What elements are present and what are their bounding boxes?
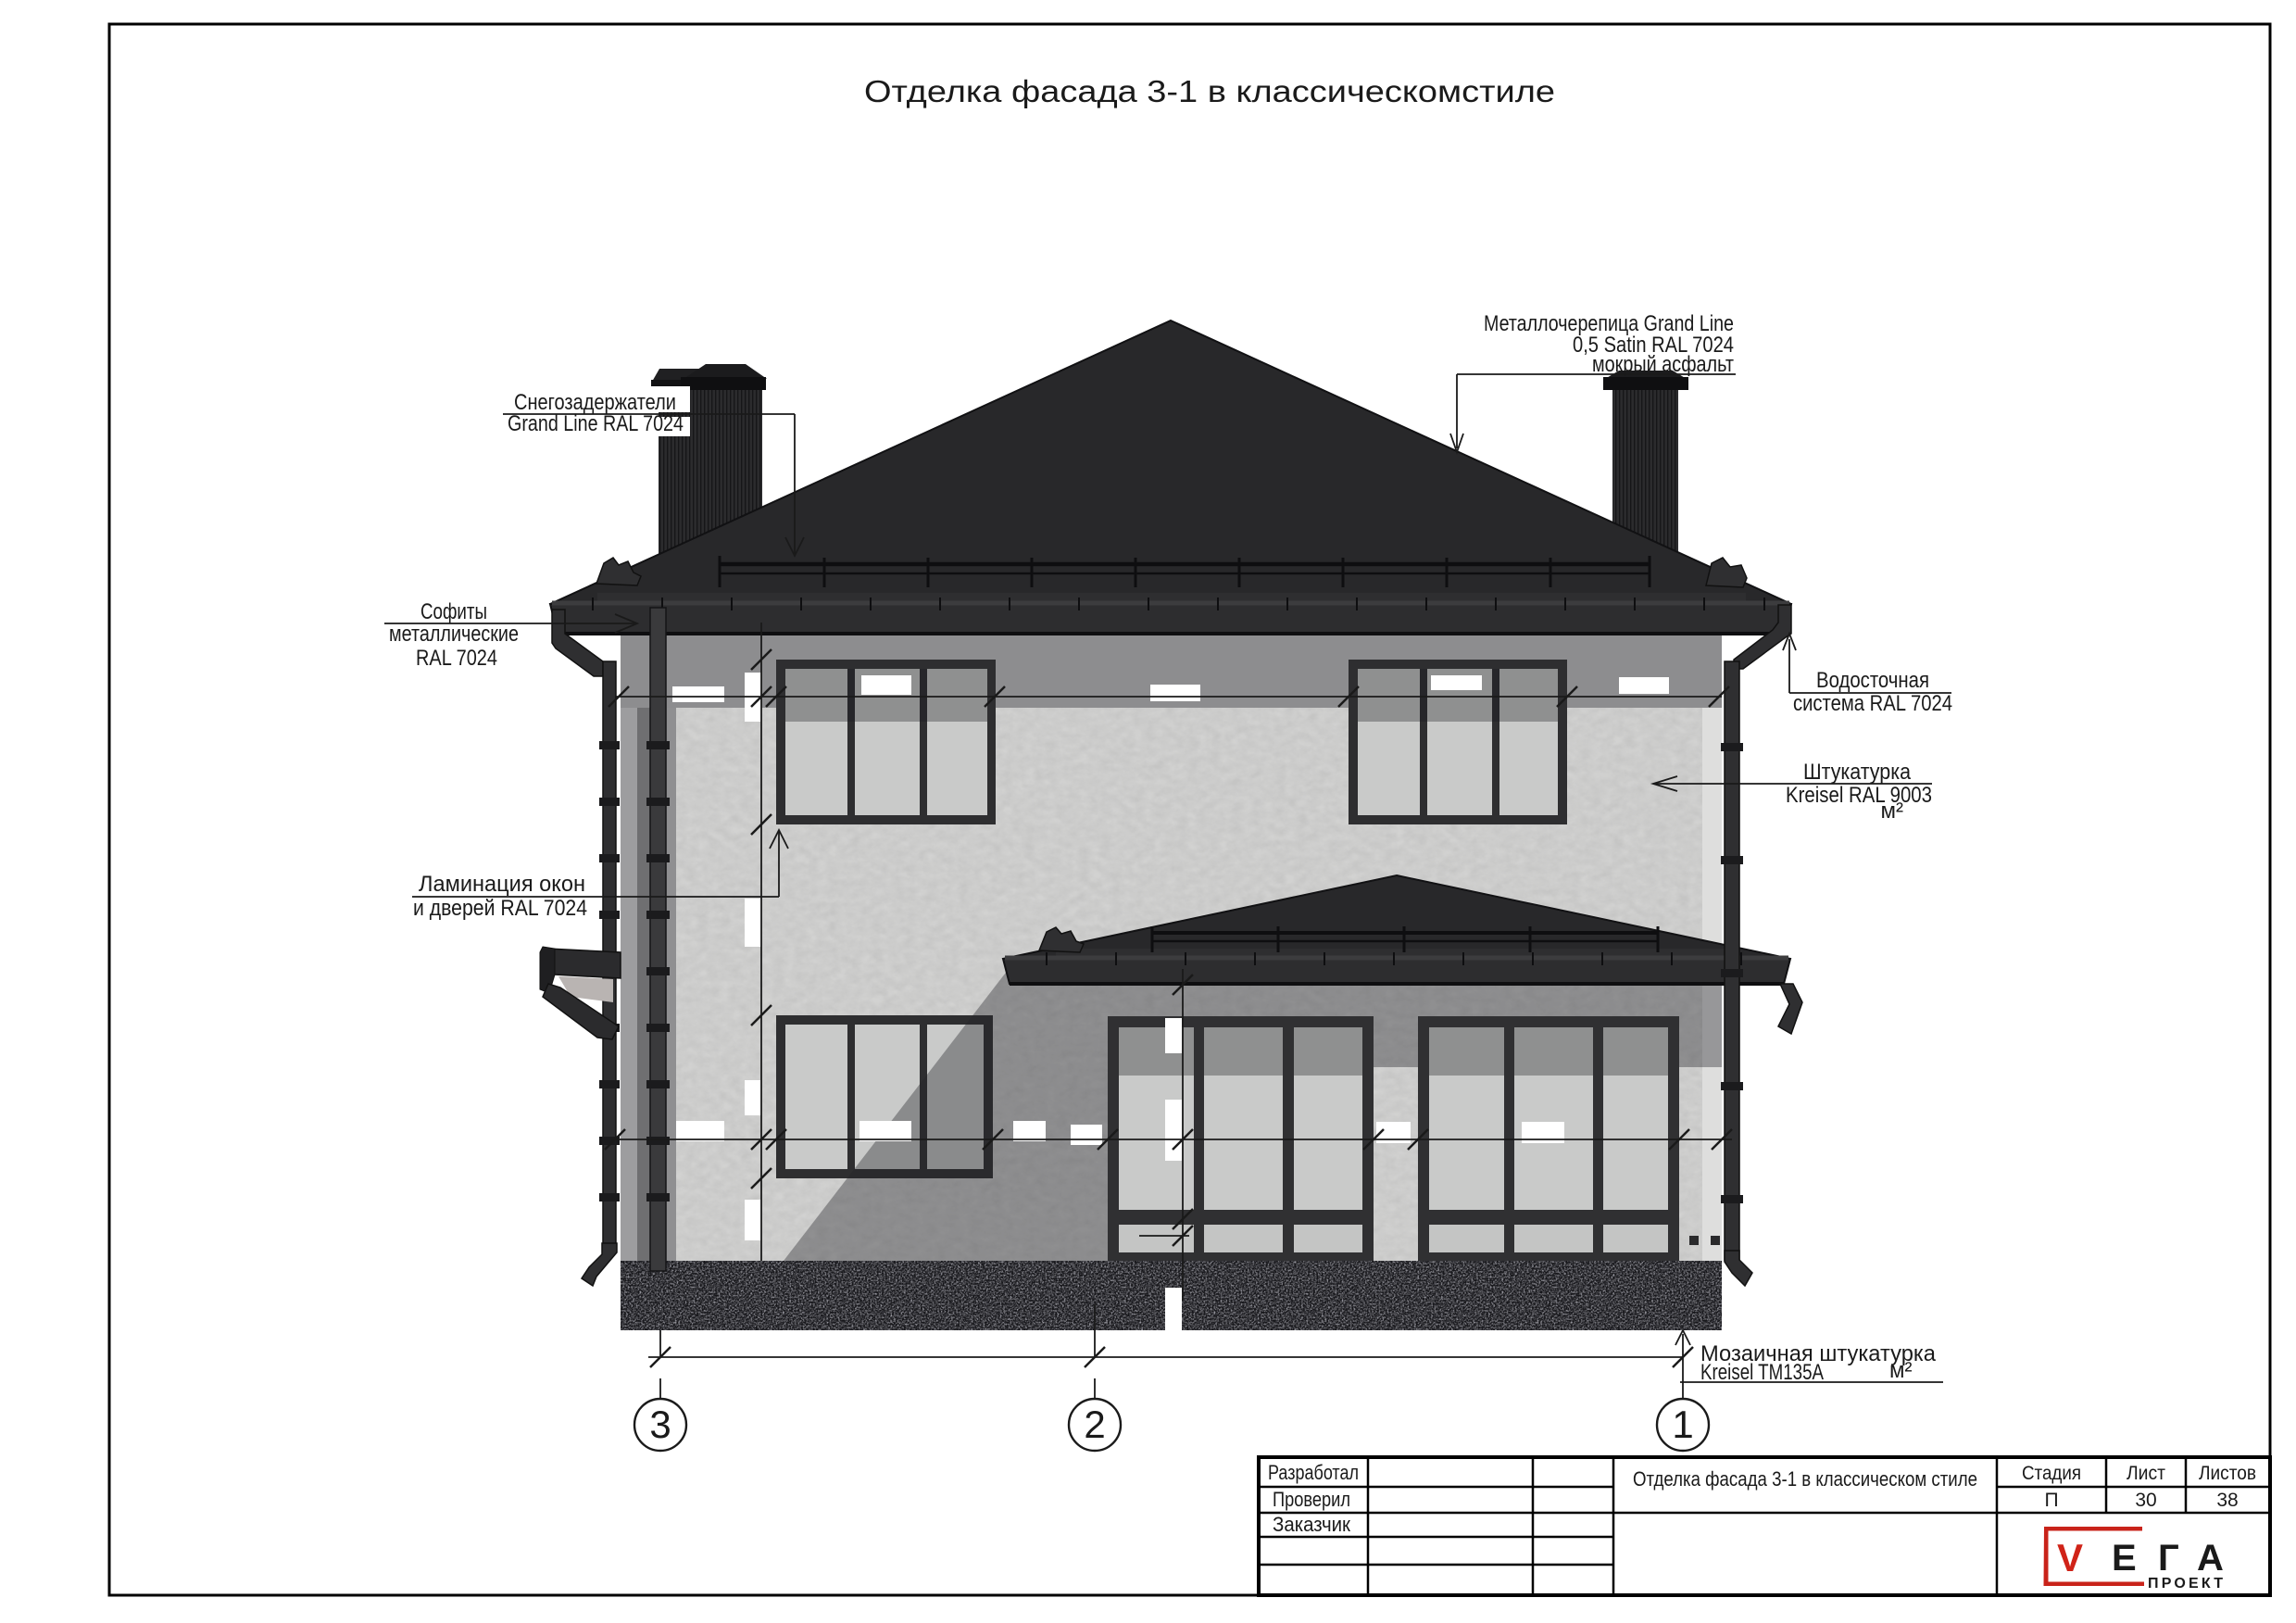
svg-text:Проверил: Проверил	[1273, 1488, 1350, 1511]
svg-text:1: 1	[1672, 1403, 1693, 1446]
svg-text:Штукатурка: Штукатурка	[1803, 760, 1912, 785]
svg-text:V: V	[2057, 1536, 2083, 1579]
svg-text:Софиты: Софиты	[420, 599, 487, 624]
svg-text:Заказчик: Заказчик	[1273, 1513, 1350, 1536]
svg-text:А: А	[2197, 1538, 2224, 1579]
svg-text:Kreisel TM135A: Kreisel TM135A	[1700, 1360, 1824, 1385]
svg-text:2: 2	[1084, 1403, 1105, 1446]
svg-text:П: П	[2044, 1490, 2058, 1511]
svg-text:Ламинация окон: Ламинация окон	[419, 872, 585, 897]
svg-text:38: 38	[2216, 1490, 2238, 1511]
svg-text:металлические: металлические	[389, 622, 519, 647]
svg-text:Стадия: Стадия	[2022, 1463, 2081, 1484]
svg-text:Листов: Листов	[2199, 1463, 2256, 1484]
svg-text:3: 3	[649, 1403, 671, 1446]
svg-text:система RAL 7024: система RAL 7024	[1793, 691, 1952, 716]
svg-text:и дверей RAL 7024: и дверей RAL 7024	[413, 896, 587, 921]
svg-text:м²: м²	[1881, 799, 1904, 824]
svg-text:мокрый асфальт: мокрый асфальт	[1592, 352, 1734, 377]
svg-text:Водосточная: Водосточная	[1816, 668, 1929, 693]
svg-text:Е: Е	[2112, 1538, 2137, 1579]
svg-text:Grand Line RAL 7024: Grand Line RAL 7024	[508, 411, 684, 436]
svg-text:Г: Г	[2158, 1538, 2179, 1579]
svg-text:ПРОЕКТ: ПРОЕКТ	[2148, 1576, 2226, 1592]
svg-text:Разработал: Разработал	[1268, 1461, 1359, 1484]
svg-text:Отделка фасада 3-1 в классичес: Отделка фасада 3-1 в классическом стиле	[1633, 1467, 1977, 1491]
svg-text:RAL 7024: RAL 7024	[416, 646, 497, 671]
svg-text:Kreisel RAL 9003: Kreisel RAL 9003	[1786, 783, 1932, 808]
svg-text:30: 30	[2135, 1490, 2156, 1511]
svg-text:Лист: Лист	[2127, 1463, 2165, 1484]
svg-text:Отделка фасада 3-1 в классичес: Отделка фасада 3-1 в классическомстиле	[864, 74, 1555, 108]
svg-text:м²: м²	[1889, 1358, 1913, 1383]
